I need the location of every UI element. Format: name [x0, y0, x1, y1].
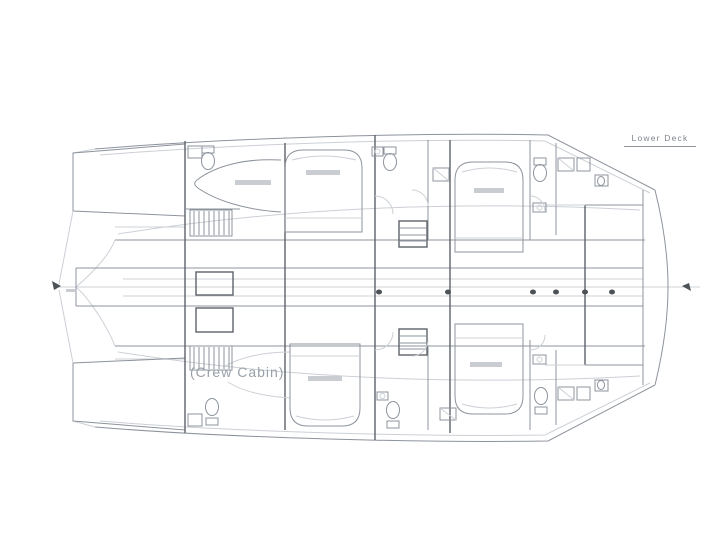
toilet-icon [384, 147, 397, 171]
toilet-icon [387, 402, 400, 429]
deck-title-label: Lower Deck [624, 133, 696, 147]
toilet-icon [202, 146, 215, 170]
centerline [52, 281, 700, 292]
illegible-label-mark [308, 376, 342, 381]
bed-bottom-aft [455, 324, 523, 414]
hull-outline [73, 134, 668, 441]
bed-top-mid [285, 150, 362, 232]
illegible-label-mark [306, 170, 340, 175]
deck-plan-drawing [0, 0, 728, 546]
toilet-icon [534, 158, 547, 182]
illegible-label-mark [235, 180, 271, 185]
deck-hatches [196, 272, 233, 332]
illegible-label-mark [66, 289, 75, 292]
toilet-icon [535, 388, 548, 415]
forward-cabin-berth [185, 160, 281, 212]
keel-fitting-dots [376, 290, 615, 295]
door-arcs [375, 190, 545, 356]
crew-cabin-label: (Crew Cabin) [190, 364, 284, 380]
bed-top-aft [455, 162, 523, 252]
shower-icon [188, 414, 202, 426]
toilet-icon [206, 399, 219, 426]
saloon-steps [399, 221, 427, 355]
illegible-label-mark [474, 188, 504, 193]
bed-bottom-mid [290, 344, 360, 426]
deck-plan: Lower Deck (Crew Cabin) [0, 0, 728, 546]
illegible-label-mark [470, 362, 502, 367]
